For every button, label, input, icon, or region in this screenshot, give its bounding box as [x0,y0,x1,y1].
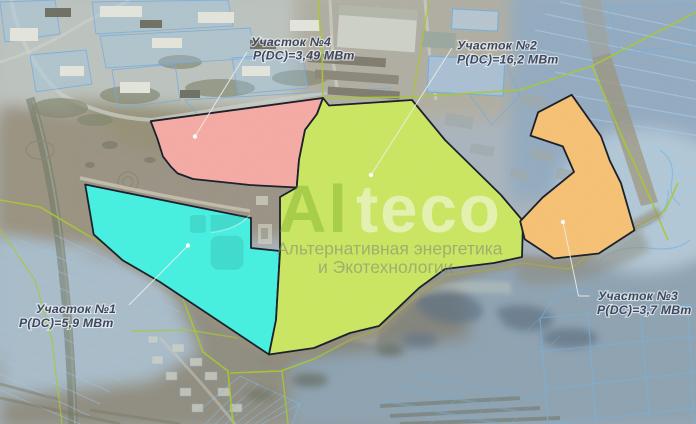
svg-text:P(DC)=3,49 МВт: P(DC)=3,49 МВт [253,49,355,63]
svg-text:P(DC)=3,7 МВт: P(DC)=3,7 МВт [597,303,692,317]
svg-text:P(DC)=5,9 МВт: P(DC)=5,9 МВт [19,316,114,330]
svg-text:Участок №3: Участок №3 [598,289,678,303]
svg-text:P(DC)=16,2 МВт: P(DC)=16,2 МВт [457,52,559,66]
svg-text:Участок №1: Участок №1 [36,302,116,316]
svg-text:Участок №4: Участок №4 [251,35,331,49]
svg-text:Участок №2: Участок №2 [457,38,537,52]
